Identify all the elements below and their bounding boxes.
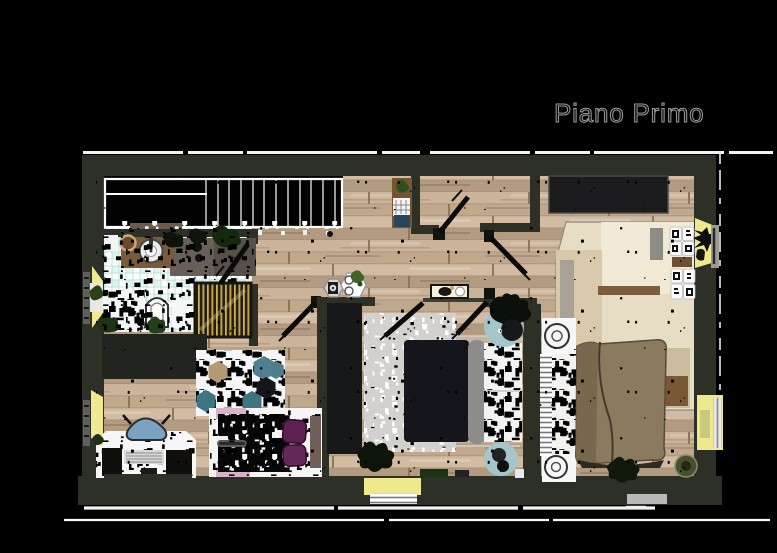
svg-text:Piano Primo: Piano Primo [554,98,704,128]
